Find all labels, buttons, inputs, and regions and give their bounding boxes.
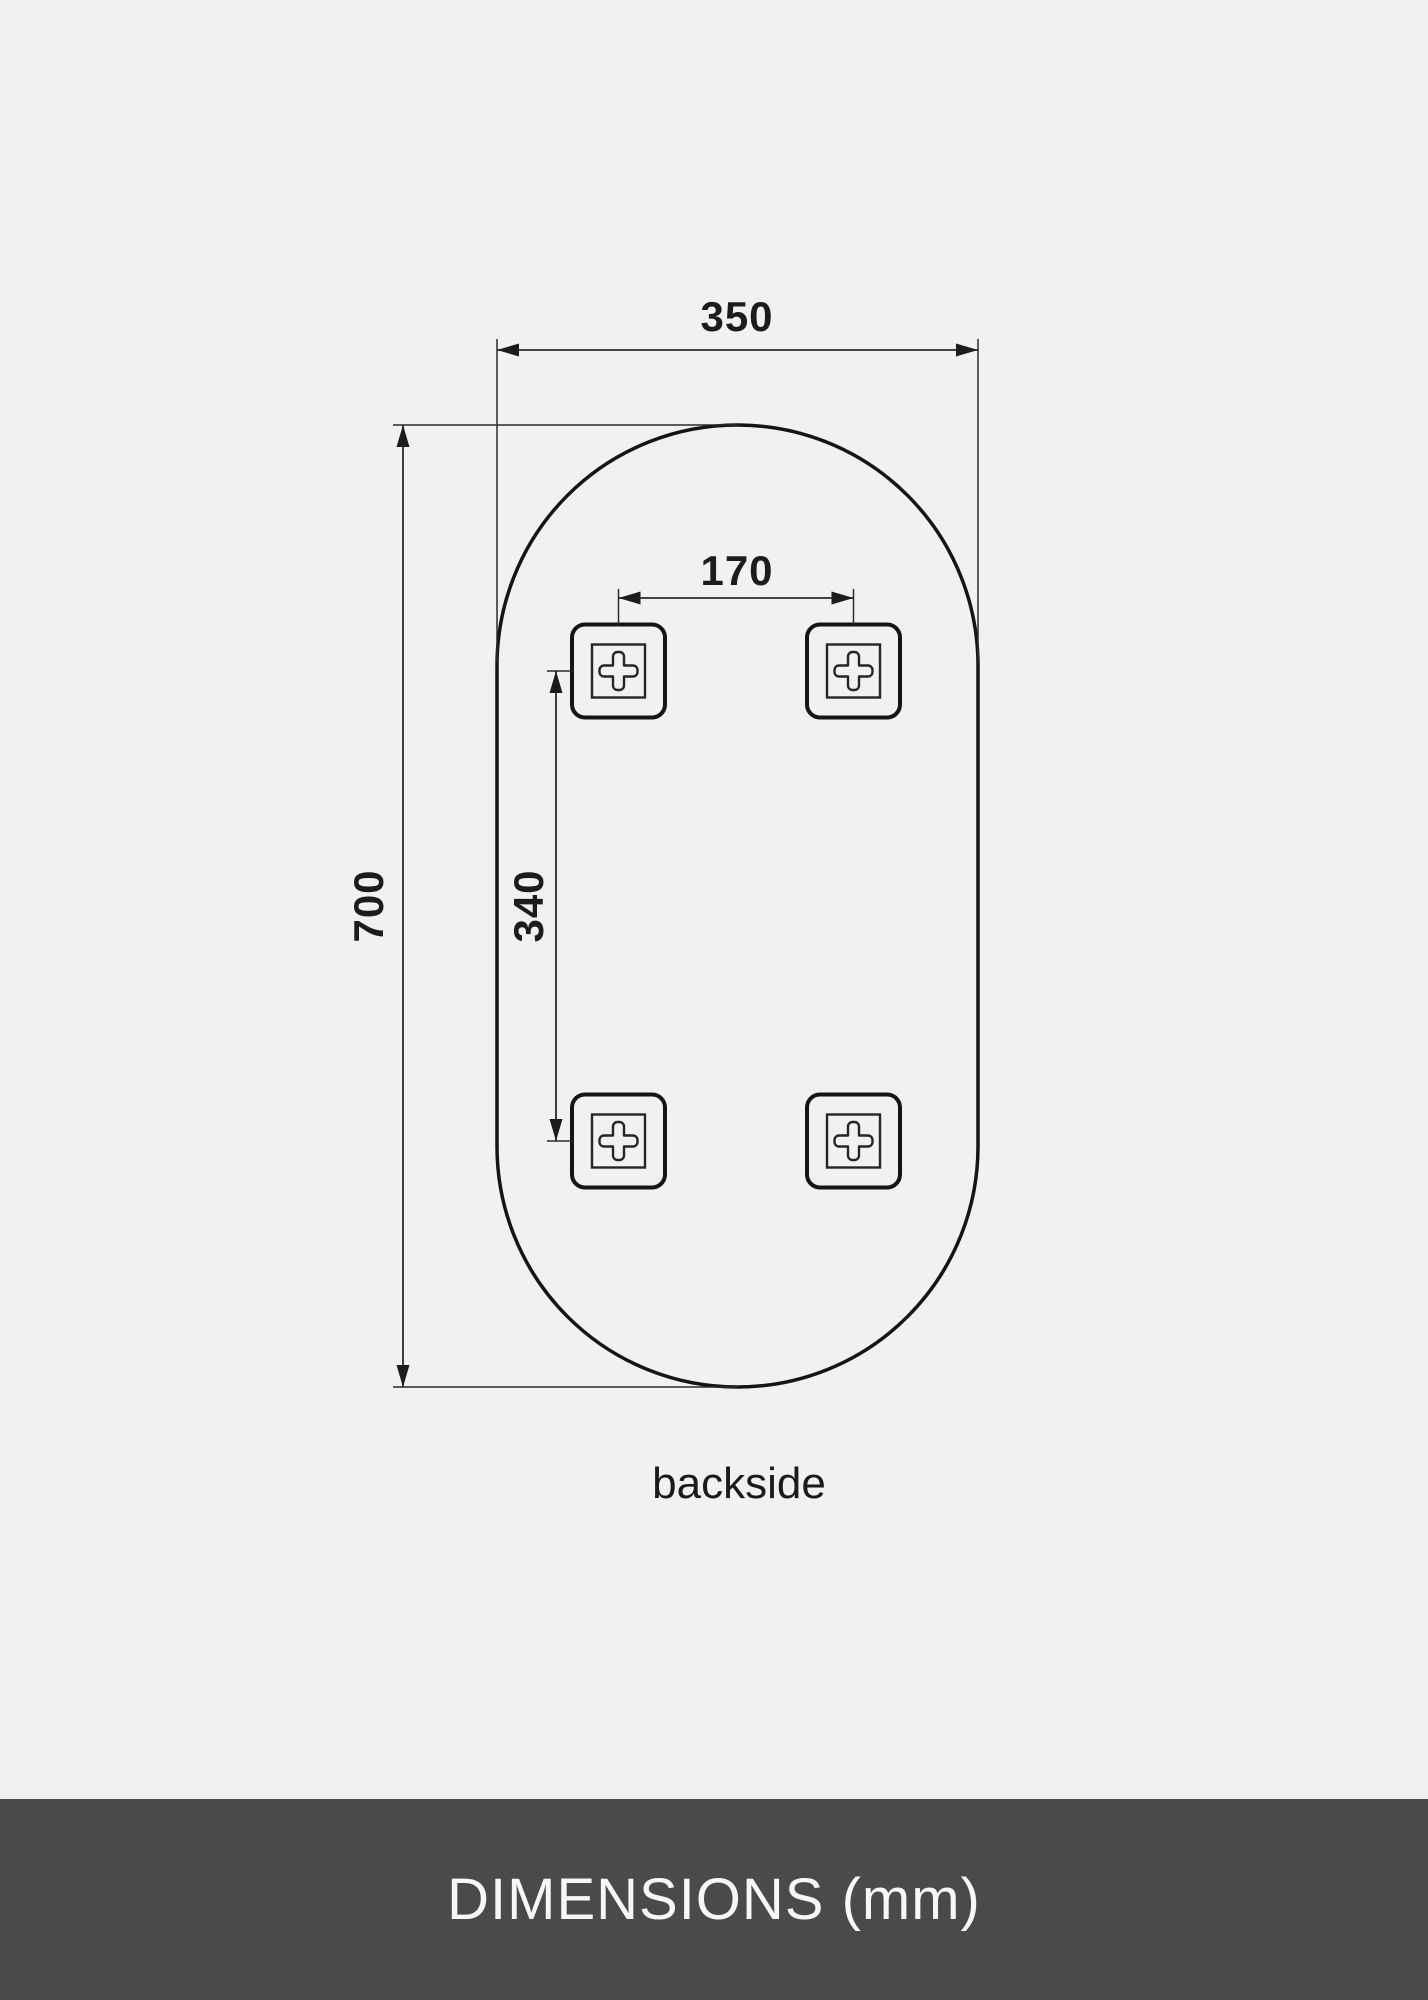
height-dimension-label: 700 <box>345 869 393 942</box>
mounting-bracket-bottom-left <box>572 1095 665 1188</box>
dimension-arrow-left-icon <box>619 592 641 605</box>
dimension-arrow-down-icon <box>550 1119 563 1141</box>
footer-title: DIMENSIONS (mm) <box>447 1866 981 1933</box>
mounting-bracket-top-left <box>572 625 665 718</box>
footer-bar: DIMENSIONS (mm) <box>0 1799 1428 2000</box>
dimension-height <box>393 425 738 1387</box>
dimension-arrow-right-icon <box>956 344 978 357</box>
dimension-width <box>497 339 978 663</box>
dimension-arrow-up-icon <box>397 425 410 447</box>
mounting-bracket-bottom-right <box>807 1095 900 1188</box>
backside-caption: backside <box>652 1459 826 1509</box>
mounting-bracket-top-right <box>807 625 900 718</box>
bracket-spacing-vertical-label: 340 <box>505 869 553 942</box>
plus-icon <box>600 1122 638 1160</box>
plus-icon <box>835 652 873 690</box>
dimension-arrow-right-icon <box>832 592 854 605</box>
dimension-arrow-up-icon <box>550 671 563 693</box>
dimension-arrow-down-icon <box>397 1365 410 1387</box>
dimension-arrow-left-icon <box>497 344 519 357</box>
width-dimension-label: 350 <box>700 293 773 341</box>
dimension-sheet: 350 700 170 340 backside DIMENSIONS (mm) <box>0 0 1428 2000</box>
plus-icon <box>600 652 638 690</box>
plus-icon <box>835 1122 873 1160</box>
bracket-spacing-horizontal-label: 170 <box>700 547 773 595</box>
